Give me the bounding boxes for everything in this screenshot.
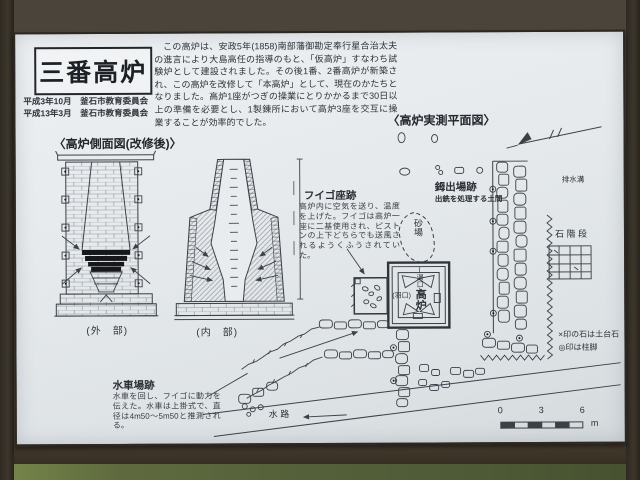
west-stone-row-2 bbox=[324, 350, 393, 359]
north-arrow-icon bbox=[507, 127, 602, 148]
terrain-line-2 bbox=[247, 357, 323, 398]
waterway-arrow bbox=[304, 415, 347, 417]
exterior-label: (外 部) bbox=[86, 322, 128, 337]
fuigo-desc: 高炉内に空気を送り、温度を上げた。フイゴは高炉一座に二基使用され、ピストンの上下… bbox=[299, 202, 400, 261]
stairs-label: 石 階 段 bbox=[555, 227, 587, 240]
slope-hatch-line bbox=[547, 215, 553, 359]
kera-desc: 出銑を処理する土間 bbox=[435, 193, 503, 204]
flow-arrow-1 bbox=[279, 332, 357, 358]
channel-bank-1 bbox=[203, 363, 621, 415]
scale-unit: m bbox=[591, 418, 599, 428]
drain-label: 排水溝 bbox=[562, 174, 585, 185]
legend-line-1: ×印の石は土台石 bbox=[558, 329, 619, 340]
drain-stones bbox=[493, 161, 529, 333]
intro-paragraph: この高炉は、安政5年(1858)南部藩御勘定奉行星合治太夫の進言により大島高任の… bbox=[154, 40, 397, 129]
stone-stairs-drawing bbox=[549, 246, 591, 279]
tuyere-label: (羽口) bbox=[392, 291, 411, 301]
exterior-furnace-drawing bbox=[54, 150, 175, 327]
west-stone-row-1 bbox=[319, 320, 388, 329]
scattered-stones bbox=[398, 132, 483, 175]
credit-line-1: 平成3年10月 釜石市教育委員会 bbox=[23, 95, 173, 108]
title-box: 三番高炉 bbox=[34, 47, 152, 96]
corner-hatch-line bbox=[481, 355, 545, 360]
furnace-label: 高炉 bbox=[412, 289, 428, 311]
left-post bbox=[0, 0, 14, 480]
legend-line-2: ◎印は柱脚 bbox=[558, 342, 597, 353]
corner-stone-row bbox=[482, 331, 537, 353]
south-stone-column bbox=[390, 329, 484, 406]
photo-of-interpretive-sign: 三番高炉 平成3年10月 釜石市教育委員会 平成13年3月 釜石市教育委員会 こ… bbox=[0, 0, 640, 480]
fuigo-label: フイゴ座跡 bbox=[304, 188, 357, 203]
scale-tick-3: 3 bbox=[539, 405, 544, 415]
sign-bottom-rail bbox=[6, 444, 634, 464]
sign-title: 三番高炉 bbox=[39, 53, 147, 89]
bellows-box bbox=[351, 278, 387, 314]
waterway-label: 水 路 bbox=[269, 407, 290, 420]
scale-tick-6: 6 bbox=[580, 405, 585, 415]
scale-bar bbox=[501, 422, 583, 428]
suisha-label: 水車場跡 bbox=[113, 378, 155, 393]
plan-drawing bbox=[181, 117, 626, 445]
kera-label: 鉧出場跡 bbox=[435, 179, 477, 194]
credit-line-2: 平成13年3月 釜石市教育委員会 bbox=[23, 107, 173, 120]
suisha-desc: 水車を回し、フイゴに動力を伝えた。水車は上掛式で、直径は4m50〜5m50と推測… bbox=[113, 391, 221, 431]
right-post bbox=[626, 0, 640, 480]
sign-board: 三番高炉 平成3年10月 釜石市教育委員会 平成13年3月 釜石市教育委員会 こ… bbox=[13, 30, 627, 447]
sand-pit-label: 砂場 bbox=[412, 219, 425, 237]
scale-tick-0: 0 bbox=[498, 405, 503, 415]
